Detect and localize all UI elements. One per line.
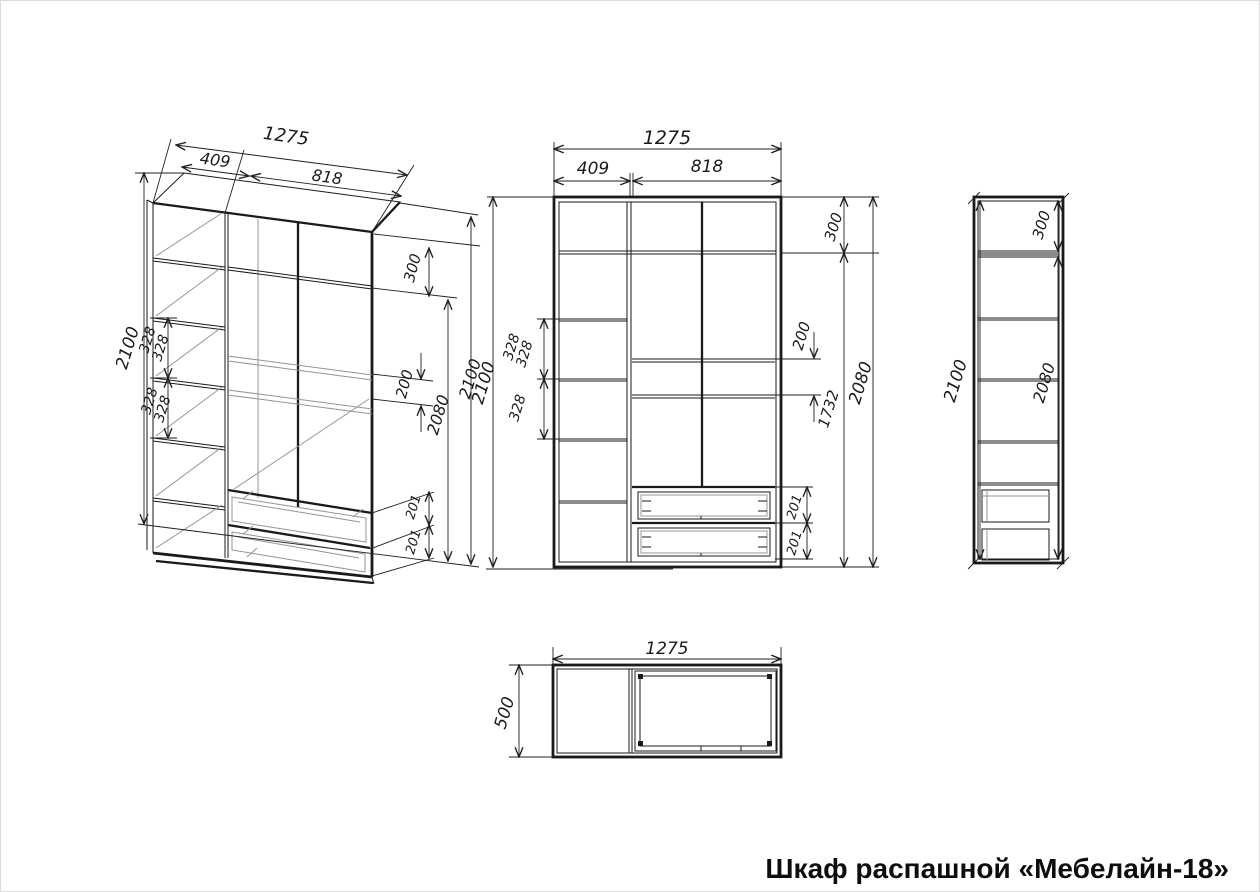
front-dim-width-left: 409	[577, 159, 609, 179]
front-carcass	[554, 197, 781, 567]
drawing-title: Шкаф распашной «Мебелайн-18»	[765, 853, 1229, 885]
front-view: 1275 409 818 2100 328 328 328 300 200 17…	[468, 127, 879, 569]
side-view: 2100 300 2080	[940, 192, 1069, 569]
iso-dim-height-inner: 2080	[423, 392, 453, 436]
front-dim-top-section: 300	[821, 211, 847, 244]
plan-carcass	[553, 665, 781, 757]
side-dim-height: 2100	[940, 357, 972, 404]
iso-dim-width-left: 409	[199, 148, 232, 171]
iso-dim-rail-gap: 200	[392, 368, 417, 400]
front-dim-shelf-2: 328	[506, 393, 529, 423]
front-dim-rail-gap: 200	[789, 320, 815, 353]
side-drawer-1	[982, 490, 1049, 522]
front-dim-height-inner: 2080	[845, 359, 877, 406]
iso-dim-width-total: 1275	[262, 123, 310, 150]
plan-view: 1275 500	[491, 639, 781, 757]
isometric-view: 1275 409 818 2100 328 328 328 328 300 20…	[112, 123, 485, 584]
iso-dim-width-right: 818	[311, 165, 344, 188]
blueprint-canvas: 1275 409 818 2100 328 328 328 328 300 20…	[0, 0, 1260, 892]
drawing-svg: 1275 409 818 2100 328 328 328 328 300 20…	[1, 1, 1260, 892]
front-drawer-1	[638, 492, 770, 519]
front-dim-width-right: 818	[691, 157, 724, 177]
iso-dim-drawer-1: 201	[403, 493, 425, 521]
iso-top-face	[153, 173, 400, 232]
side-dim-height-inner: 2080	[1029, 360, 1059, 404]
plan-dim-width: 1275	[645, 639, 688, 659]
front-dim-drawer-1: 201	[784, 493, 806, 521]
front-dim-drawer-2: 201	[784, 529, 806, 557]
plan-dim-depth: 500	[491, 695, 520, 732]
front-dim-width-total: 1275	[643, 127, 691, 149]
side-drawer-2	[982, 529, 1049, 560]
iso-dim-drawer-2: 201	[403, 528, 425, 556]
side-dim-top-section: 300	[1029, 209, 1055, 242]
front-drawer-2	[638, 528, 770, 556]
plan-drawer-unit	[635, 671, 776, 751]
front-dim-lower-section: 1732	[814, 388, 842, 430]
iso-dim-top-section: 300	[400, 252, 425, 284]
